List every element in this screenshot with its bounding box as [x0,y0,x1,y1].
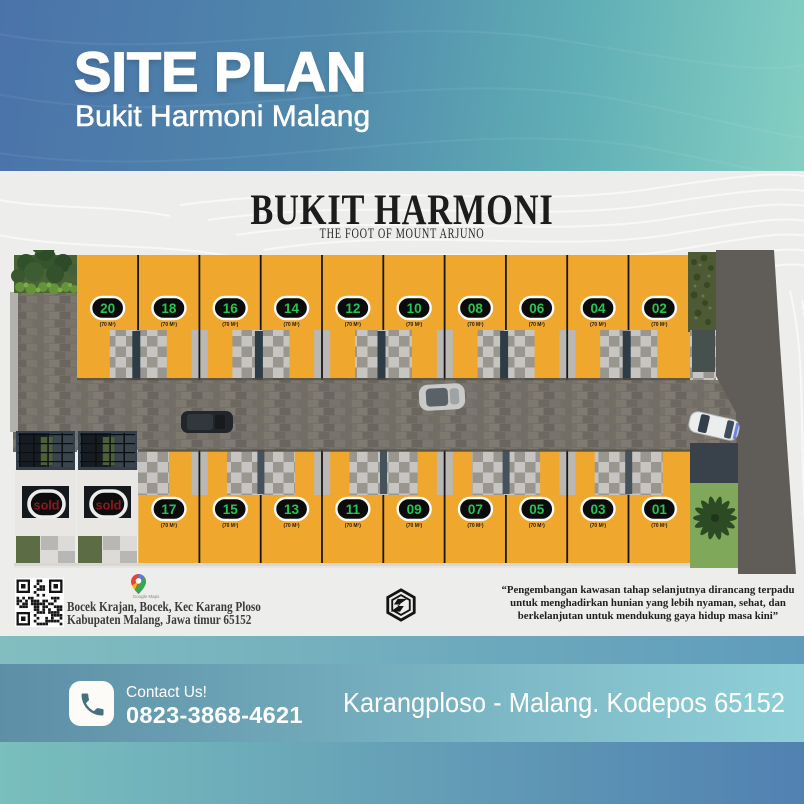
svg-text:(70 M²): (70 M²) [406,322,422,328]
svg-text:(70 M²): (70 M²) [590,523,606,529]
svg-text:17: 17 [161,502,176,517]
svg-text:09: 09 [407,502,422,517]
svg-text:16: 16 [223,301,239,316]
svg-text:(70 M²): (70 M²) [161,523,177,529]
svg-text:06: 06 [529,301,545,316]
svg-text:(70 M²): (70 M²) [406,523,422,529]
svg-text:15: 15 [223,502,239,517]
svg-text:(70 M²): (70 M²) [283,322,299,328]
svg-text:(70 M²): (70 M²) [467,322,483,328]
svg-text:(70 M²): (70 M²) [467,523,483,529]
svg-text:03: 03 [591,502,607,517]
svg-text:(70 M²): (70 M²) [651,322,667,328]
svg-text:04: 04 [591,301,607,316]
svg-text:(70 M²): (70 M²) [345,322,361,328]
svg-text:(70 M²): (70 M²) [590,322,606,328]
svg-text:(70 M²): (70 M²) [283,523,299,529]
svg-text:02: 02 [652,301,667,316]
svg-text:(70 M²): (70 M²) [529,322,545,328]
svg-text:13: 13 [284,502,300,517]
svg-text:(70 M²): (70 M²) [345,523,361,529]
svg-text:(70 M²): (70 M²) [529,523,545,529]
svg-text:18: 18 [161,301,177,316]
svg-text:sold: sold [34,499,60,513]
svg-text:11: 11 [346,502,361,517]
svg-text:01: 01 [652,502,668,517]
svg-text:sold: sold [96,499,122,513]
svg-text:14: 14 [284,301,300,316]
svg-text:(70 M²): (70 M²) [222,523,238,529]
svg-text:12: 12 [345,301,360,316]
svg-text:(70 M²): (70 M²) [651,523,667,529]
svg-text:08: 08 [468,301,484,316]
svg-text:(70 M²): (70 M²) [161,322,177,328]
svg-text:07: 07 [468,502,483,517]
svg-text:(70 M²): (70 M²) [100,322,116,328]
svg-text:20: 20 [100,301,115,316]
svg-text:10: 10 [407,301,422,316]
svg-text:05: 05 [529,502,545,517]
svg-text:(70 M²): (70 M²) [222,322,238,328]
